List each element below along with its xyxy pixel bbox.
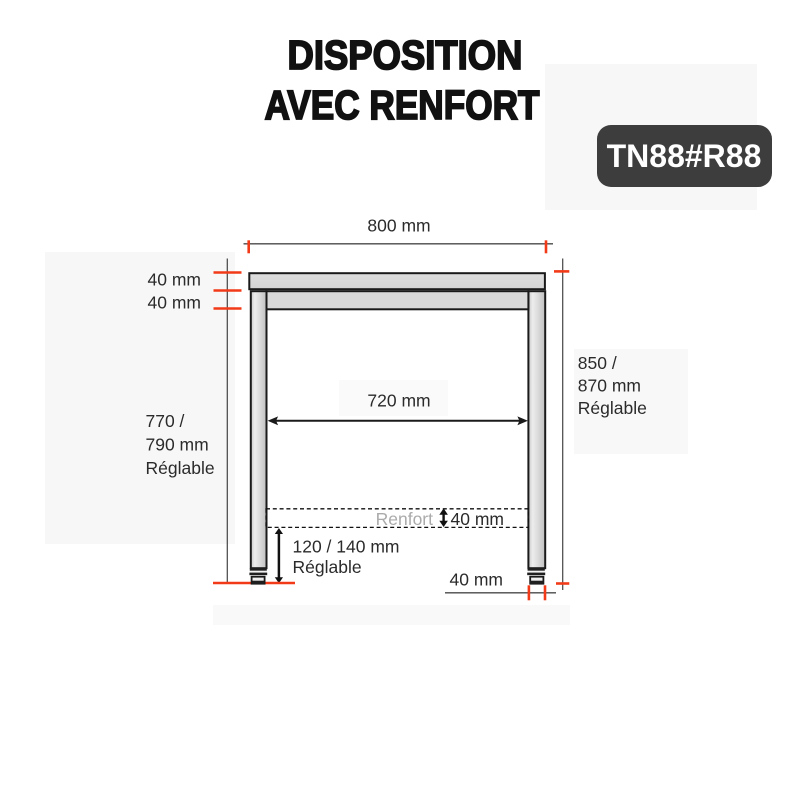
svg-text:40 mm: 40 mm bbox=[451, 509, 504, 529]
svg-text:870 mm: 870 mm bbox=[578, 376, 641, 396]
svg-text:Réglable: Réglable bbox=[293, 557, 362, 577]
svg-text:40 mm: 40 mm bbox=[148, 293, 201, 313]
svg-text:DISPOSITION: DISPOSITION bbox=[288, 32, 523, 78]
svg-text:TN88#R88: TN88#R88 bbox=[607, 138, 762, 174]
svg-text:Réglable: Réglable bbox=[578, 398, 647, 418]
svg-text:Réglable: Réglable bbox=[146, 458, 215, 478]
svg-text:AVEC RENFORT: AVEC RENFORT bbox=[265, 82, 540, 128]
svg-text:720 mm: 720 mm bbox=[367, 391, 430, 411]
svg-text:120 / 140 mm: 120 / 140 mm bbox=[293, 537, 400, 557]
svg-text:Renfort: Renfort bbox=[376, 509, 434, 529]
svg-text:790 mm: 790 mm bbox=[146, 435, 209, 455]
svg-text:40 mm: 40 mm bbox=[148, 270, 201, 290]
svg-text:770 /: 770 / bbox=[146, 411, 185, 431]
svg-text:800 mm: 800 mm bbox=[367, 216, 430, 236]
svg-text:850 /: 850 / bbox=[578, 353, 617, 373]
svg-text:40 mm: 40 mm bbox=[450, 570, 503, 590]
